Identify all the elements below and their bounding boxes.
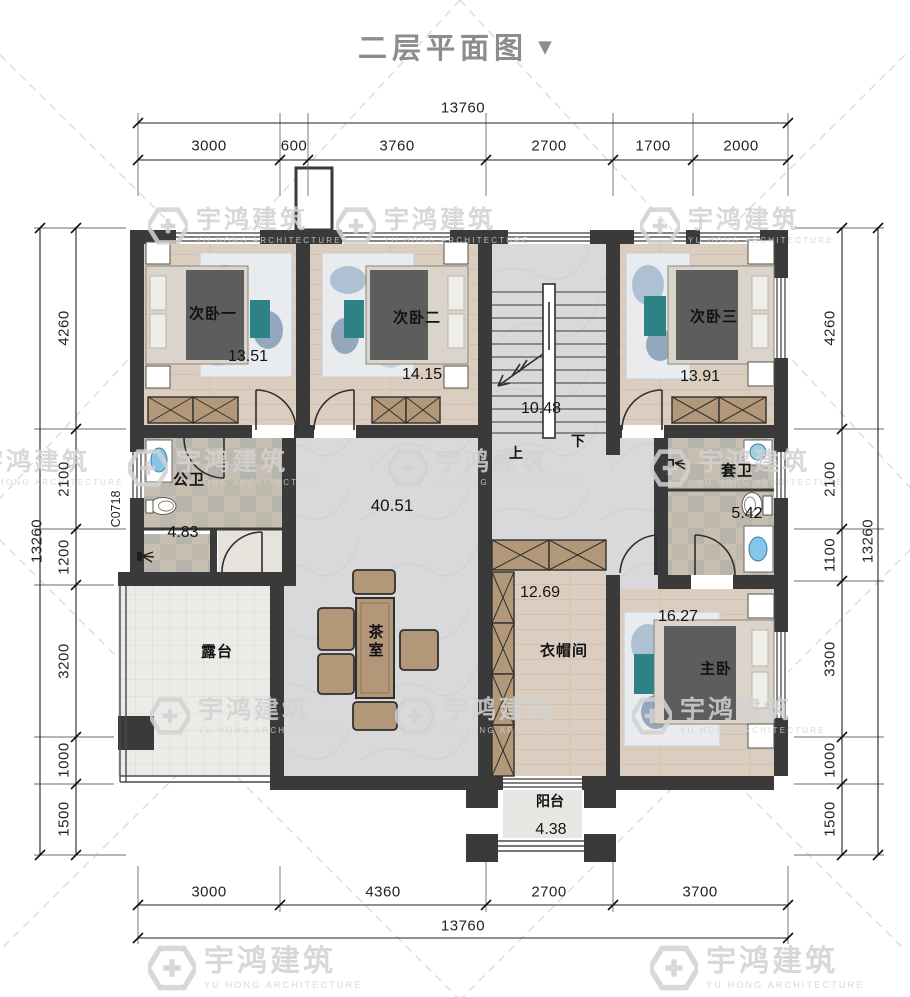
watermark-subtext: YU HONG ARCHITECTURE [196, 236, 342, 245]
room-area-bedroom1: 13.51 [228, 348, 268, 366]
dim-bottom-seg: 3000 [191, 884, 226, 901]
dim-top-total: 13760 [441, 100, 485, 117]
dim-bottom-seg: 4360 [365, 884, 400, 901]
yuhong-logo-icon [148, 206, 188, 246]
dim-right-seg: 4260 [822, 310, 839, 345]
watermark: 宇鸿建筑YU HONG ARCHITECTURE [128, 448, 322, 488]
dim-right-seg: 1100 [822, 538, 839, 572]
title-dropdown-arrow-icon: ▼ [534, 34, 557, 61]
dim-top-seg: 2700 [531, 138, 566, 155]
room-area-master: 16.27 [658, 608, 698, 626]
yuhong-logo-icon [128, 448, 168, 488]
yuhong-logo-icon [148, 944, 196, 992]
room-label-suite-bath: 套卫 [721, 460, 753, 481]
dim-right-seg: 2100 [822, 461, 839, 496]
yuhong-logo-icon [632, 696, 672, 736]
dim-right-seg: 3300 [822, 641, 839, 676]
yuhong-logo-icon [336, 206, 376, 246]
watermark: 宇鸿建筑YU HONG ARCHITECTURE [650, 944, 865, 992]
floor-plan-page: 宇鸿建筑YU HONG ARCHITECTURE 宇鸿建筑YU HONG ARC… [0, 0, 910, 997]
dim-left-seg: 1200 [56, 539, 73, 574]
stairs-up-label: 上 [509, 443, 523, 463]
watermark: 宇鸿建筑YU HONG ARCHITECTURE [640, 206, 834, 246]
dim-bottom-seg: 3700 [682, 884, 717, 901]
dim-top-seg: 1700 [635, 138, 670, 155]
yuhong-logo-icon [150, 696, 190, 736]
room-area-bedroom2: 14.15 [402, 366, 442, 384]
dim-top-seg: 3760 [379, 138, 414, 155]
room-label-terrace: 露台 [201, 641, 233, 662]
floor-plan-drawing [0, 0, 910, 997]
room-area-public-bath: 4.83 [167, 524, 198, 542]
dim-left-total: 13260 [29, 519, 46, 563]
dim-left-seg: 4260 [56, 310, 73, 345]
room-area-hall: 40.51 [371, 496, 414, 516]
watermark: 宇鸿建筑YU HONG ARCHITECTURE [148, 944, 363, 992]
room-area-suite-bath: 5.42 [731, 505, 762, 523]
dim-top-seg: 3000 [191, 138, 226, 155]
yuhong-logo-icon [395, 696, 435, 736]
dim-top-seg: 2000 [723, 138, 758, 155]
room-label-balcony: 阳台 [536, 791, 564, 811]
room-label-tea-room: 茶室 [365, 624, 386, 660]
yuhong-logo-icon [388, 448, 428, 488]
watermark-text: 宇鸿建筑 [196, 207, 342, 233]
room-label-master: 主卧 [700, 658, 732, 679]
watermark: 宇鸿建筑YU HONG ARCHITECTURE [148, 206, 342, 246]
stairs-down-label: 下 [571, 431, 585, 451]
page-title: 二层平面图 [358, 25, 528, 67]
dim-top-seg: 600 [281, 138, 308, 155]
dim-right-seg: 1500 [822, 801, 839, 836]
room-label-bedroom3: 次卧三 [690, 306, 738, 327]
room-label-bedroom2: 次卧二 [393, 307, 441, 328]
yuhong-logo-icon [650, 448, 690, 488]
dim-right-total: 13260 [860, 519, 877, 563]
room-area-stairs: 10.48 [521, 400, 561, 418]
dim-bottom-seg: 2700 [531, 884, 566, 901]
watermark: 宇鸿建筑YU HONG ARCHITECTURE [395, 696, 589, 736]
room-label-public-bath: 公卫 [173, 469, 205, 490]
window-code-label: C0718 [109, 491, 123, 528]
dim-left-seg: 1500 [56, 801, 73, 836]
room-area-cloakroom: 12.69 [520, 584, 560, 602]
dim-left-seg: 3200 [56, 643, 73, 678]
room-area-bedroom3: 13.91 [680, 368, 720, 386]
yuhong-logo-icon [640, 206, 680, 246]
room-label-cloakroom: 衣帽间 [540, 640, 588, 661]
dim-bottom-total: 13760 [441, 918, 485, 935]
room-area-balcony: 4.38 [535, 821, 566, 839]
dim-left-seg: 2100 [56, 461, 73, 496]
dim-right-seg: 1000 [822, 742, 839, 777]
watermark: 宇鸿建筑YU HONG ARCHITECTURE [150, 696, 344, 736]
watermark: 宇鸿建筑YU HONG ARCHITECTURE [336, 206, 530, 246]
yuhong-logo-icon [650, 944, 698, 992]
room-label-bedroom1: 次卧一 [189, 303, 237, 324]
dim-left-seg: 1000 [56, 742, 73, 777]
watermark: 宇鸿建筑YU HONG ARCHITECTURE [632, 696, 826, 736]
watermark: 宇鸿建筑YU HONG ARCHITECTURE [388, 448, 582, 488]
